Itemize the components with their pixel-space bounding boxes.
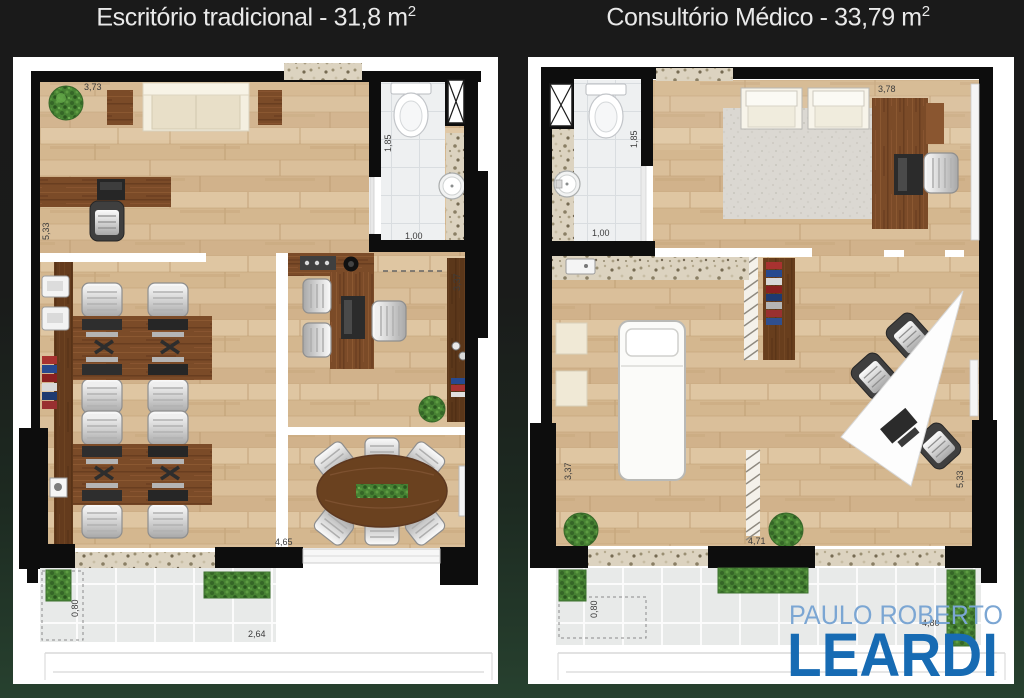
- svg-text:LEARDI: LEARDI: [787, 621, 998, 689]
